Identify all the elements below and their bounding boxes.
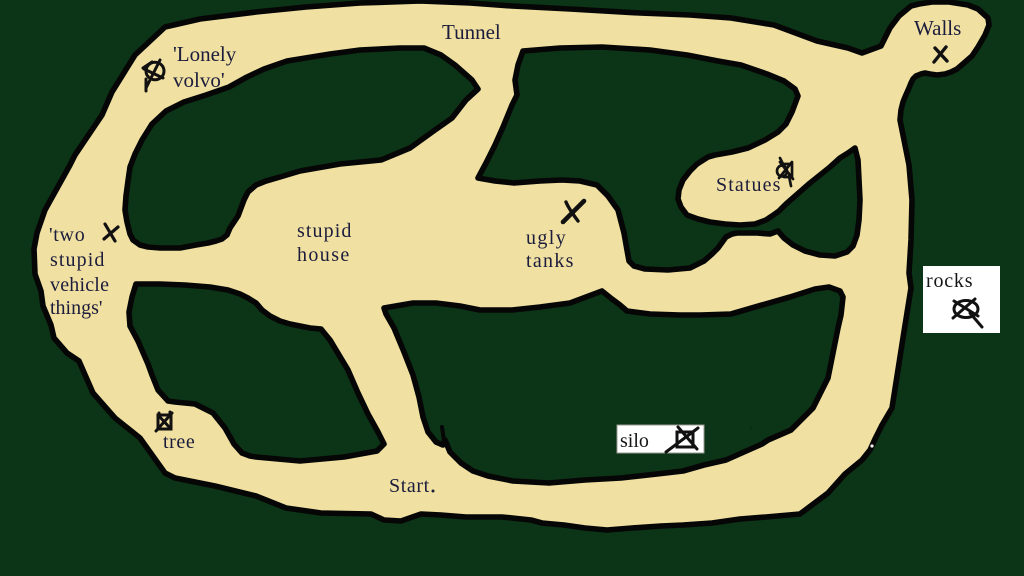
svg-text:Start: Start bbox=[389, 475, 430, 497]
svg-text:vehicle: vehicle bbox=[50, 274, 109, 296]
svg-text:silo: silo bbox=[620, 430, 649, 452]
svg-text:ugly: ugly bbox=[526, 227, 567, 249]
svg-text:tanks: tanks bbox=[526, 250, 575, 272]
svg-text:stupid: stupid bbox=[297, 220, 353, 242]
svg-text:rocks: rocks bbox=[926, 270, 973, 292]
svg-text:Tunnel: Tunnel bbox=[442, 20, 501, 44]
svg-text:'Lonely: 'Lonely bbox=[173, 42, 237, 66]
svg-text:tree: tree bbox=[163, 431, 195, 453]
svg-text:volvo': volvo' bbox=[173, 68, 225, 92]
svg-text:Statues: Statues bbox=[716, 174, 781, 196]
svg-text:'two: 'two bbox=[49, 224, 85, 246]
svg-text:Walls: Walls bbox=[914, 16, 961, 40]
svg-text:stupid: stupid bbox=[50, 249, 106, 271]
svg-text:house: house bbox=[297, 244, 351, 266]
svg-text:things': things' bbox=[50, 297, 103, 319]
